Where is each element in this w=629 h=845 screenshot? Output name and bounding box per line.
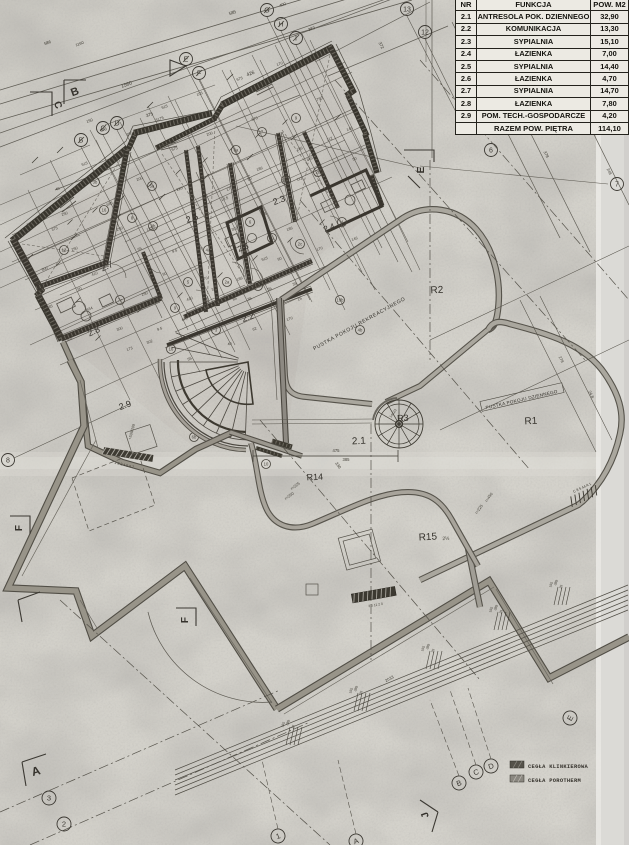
svg-text:7: 7 — [615, 182, 619, 189]
svg-text:2½: 2½ — [442, 535, 450, 542]
svg-text:6: 6 — [489, 148, 493, 155]
svg-text:10b: 10b — [337, 298, 345, 303]
svg-text:R2: R2 — [430, 285, 444, 297]
svg-text:475: 475 — [333, 448, 341, 453]
svg-text:CEGŁA KLINKIEROWA: CEGŁA KLINKIEROWA — [528, 764, 589, 770]
svg-text:R14: R14 — [306, 472, 323, 483]
svg-text:R1: R1 — [524, 416, 538, 428]
svg-text:385: 385 — [343, 457, 351, 462]
svg-text:CEGŁA POROTHERM: CEGŁA POROTHERM — [528, 778, 581, 784]
svg-text:10: 10 — [264, 462, 269, 467]
svg-text:8: 8 — [6, 458, 10, 465]
svg-text:4b: 4b — [358, 328, 363, 333]
svg-text:E: E — [416, 166, 427, 173]
svg-text:13: 13 — [403, 7, 411, 14]
svg-text:3b: 3b — [93, 180, 98, 185]
svg-text:2: 2 — [62, 820, 66, 829]
svg-text:3: 3 — [47, 794, 51, 803]
svg-text:F: F — [14, 525, 25, 531]
svg-text:F: F — [180, 617, 191, 623]
svg-text:R15: R15 — [418, 532, 437, 544]
svg-text:12: 12 — [421, 30, 429, 37]
svg-text:2.1: 2.1 — [352, 436, 367, 448]
svg-text:R3: R3 — [397, 413, 409, 424]
